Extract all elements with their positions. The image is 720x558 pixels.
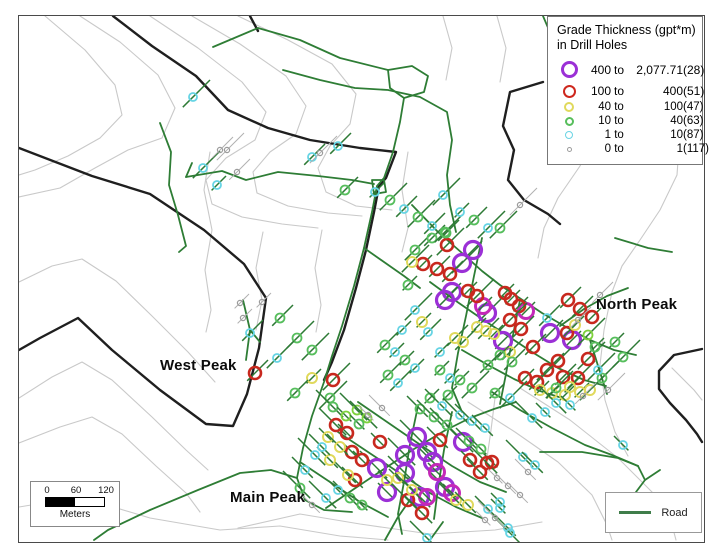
road-line	[645, 470, 660, 480]
map-frame: North PeakWest PeakMain Peak Grade Thick…	[18, 15, 705, 543]
contour-line	[204, 152, 212, 332]
legend-class-count: (28)	[683, 63, 706, 77]
scalebar-tick-60: 60	[71, 485, 82, 496]
legend-row: 0to1(117)	[557, 143, 696, 155]
contour-line	[19, 16, 122, 175]
legend-rows: 400to2,077.71(28)100to400(51)40to100(47)…	[557, 61, 696, 155]
road-line	[213, 28, 428, 98]
drill-trace	[542, 320, 563, 341]
contour-line	[19, 16, 175, 197]
road-line	[615, 238, 672, 252]
legend-row: 10to40(63)	[557, 115, 696, 127]
legend-range-hi: 40	[627, 115, 683, 127]
legend-title-line1: Grade Thickness (gpt*m)	[557, 23, 696, 38]
contour-line	[150, 16, 318, 228]
road-line	[186, 163, 192, 177]
legend-range-lo: 40	[581, 101, 611, 113]
legend-row: 100to400(51)	[557, 84, 696, 98]
legend-class-circle-icon	[561, 61, 578, 78]
region-label-west-peak: West Peak	[160, 357, 237, 374]
legend-class-count: (63)	[683, 115, 705, 127]
contour-line	[256, 232, 263, 330]
road-line	[160, 123, 186, 252]
scalebar-box: 0 60 120 Meters	[30, 481, 120, 527]
legend-class-circle-icon	[563, 85, 576, 98]
legend-range-separator: to	[611, 101, 627, 113]
contour-line	[443, 16, 452, 80]
legend-range-hi: 10	[627, 129, 683, 141]
index-contour-line	[19, 148, 266, 426]
legend-row: 1to10(87)	[557, 129, 696, 141]
legend-range-hi: 2,077.71	[627, 63, 683, 77]
legend-row: 40to100(47)	[557, 101, 696, 113]
scalebar-tick-0: 0	[44, 485, 49, 496]
legend-range-separator: to	[611, 143, 627, 155]
legend-class-count: (87)	[683, 129, 705, 141]
legend-range-lo: 1	[581, 129, 611, 141]
legend-range-separator: to	[611, 115, 627, 127]
scalebar-tick-120: 120	[98, 485, 114, 496]
legend-range-lo: 0	[581, 143, 611, 155]
scalebar-bar-filled	[46, 498, 75, 506]
drill-trace	[510, 188, 537, 215]
legend-range-hi: 100	[627, 101, 683, 113]
region-label-north-peak: North Peak	[596, 296, 677, 313]
legend-title: Grade Thickness (gpt*m) in Drill Holes	[557, 23, 696, 53]
scalebar-ticks: 0 60 120	[31, 485, 119, 496]
legend-class-count: (117)	[683, 143, 711, 155]
legend-class-count: (47)	[683, 101, 705, 113]
legend-class-circle-icon	[567, 147, 572, 152]
slide-background: North PeakWest PeakMain Peak Grade Thick…	[0, 0, 720, 558]
index-contour-line	[659, 349, 702, 442]
scalebar-bar	[45, 497, 105, 507]
legend-class-circle-icon	[565, 117, 574, 126]
legend-range-separator: to	[611, 129, 627, 141]
legend-range-separator: to	[611, 63, 627, 77]
legend-title-line2: in Drill Holes	[557, 38, 696, 53]
legend-class-circle-icon	[564, 102, 574, 112]
legend-class-circle-icon	[565, 131, 573, 139]
drill-trace	[495, 473, 516, 494]
legend-range-hi: 400	[627, 84, 683, 98]
contour-line	[238, 16, 392, 210]
road-legend-label: Road	[661, 507, 687, 519]
scalebar-unit: Meters	[31, 509, 119, 520]
road-legend-line-icon	[619, 511, 651, 514]
road-legend-box: Road	[605, 492, 702, 533]
contour-line	[672, 368, 702, 400]
legend-class-count: (51)	[683, 84, 706, 98]
road-line	[540, 452, 645, 492]
contour-line	[497, 16, 506, 82]
contour-line	[315, 230, 322, 332]
legend-range-lo: 400	[581, 63, 611, 77]
drill-trace	[507, 482, 528, 503]
drill-trace	[217, 133, 244, 160]
legend-range-lo: 10	[581, 115, 611, 127]
legend-range-hi: 1	[627, 143, 683, 155]
contour-line	[19, 362, 208, 470]
contour-line	[402, 152, 408, 252]
grade-legend-box: Grade Thickness (gpt*m) in Drill Holes 4…	[547, 16, 703, 165]
legend-row: 400to2,077.71(28)	[557, 61, 696, 78]
legend-range-lo: 100	[581, 84, 611, 98]
legend-range-separator: to	[611, 84, 627, 98]
scalebar-bar-empty	[75, 498, 104, 506]
road-line	[430, 522, 443, 540]
region-label-main-peak: Main Peak	[230, 489, 305, 506]
